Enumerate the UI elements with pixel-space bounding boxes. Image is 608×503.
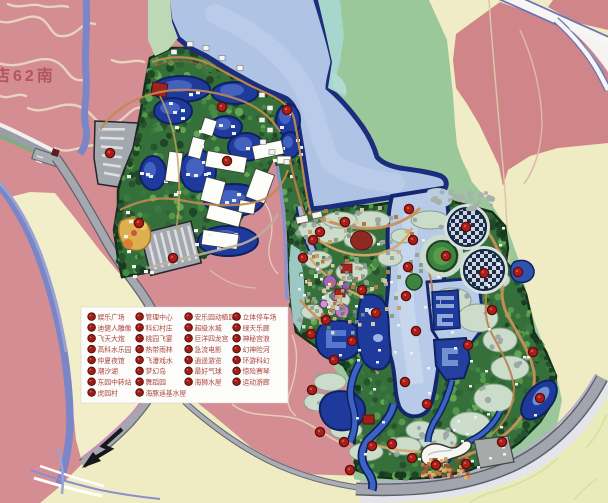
svg-text:运动游廊: 运动游廊	[243, 378, 270, 387]
svg-text:飞瀑戏水: 飞瀑戏水	[146, 356, 173, 365]
svg-text:迪健人雕像: 迪健人雕像	[98, 323, 132, 332]
svg-text:娱乐广场: 娱乐广场	[98, 312, 125, 321]
svg-text:立体停车场: 立体停车场	[243, 312, 277, 321]
svg-text:逍遥游览: 逍遥游览	[195, 356, 222, 365]
svg-text:仲夏夜馆: 仲夏夜馆	[98, 356, 125, 365]
svg-text:舞蹈园: 舞蹈园	[146, 378, 167, 387]
svg-text:惊险赛琴: 惊险赛琴	[243, 367, 270, 376]
svg-text:安乐园动植园: 安乐园动植园	[195, 312, 236, 321]
svg-text:最好气球: 最好气球	[195, 367, 222, 376]
svg-text:超级水城: 超级水城	[195, 323, 222, 332]
svg-text:神秘宫浪: 神秘宫浪	[243, 334, 270, 343]
svg-text:巨洋四龙宫: 巨洋四龙宫	[195, 334, 229, 343]
svg-text:虎园村: 虎园村	[98, 388, 119, 397]
svg-text:潮汐湖: 潮汐湖	[98, 367, 119, 376]
svg-text:科幻村庄: 科幻村庄	[146, 323, 173, 332]
svg-text:高科水乐园: 高科水乐园	[98, 345, 132, 354]
svg-text:梦幻岛: 梦幻岛	[146, 367, 167, 376]
svg-text:绿天乐廊: 绿天乐廊	[243, 323, 270, 332]
svg-text:东园中转站: 东园中转站	[98, 378, 132, 387]
svg-text:急流电影: 急流电影	[195, 345, 222, 354]
svg-text:幻神险河: 幻神险河	[243, 345, 270, 354]
svg-text:海狮水屋: 海狮水屋	[195, 378, 222, 387]
svg-text:管理中心: 管理中心	[146, 312, 173, 321]
svg-text:飞天大炮: 飞天大炮	[98, 334, 125, 343]
svg-text:环游科幻: 环游科幻	[243, 356, 270, 365]
svg-text:热带雨林: 热带雨林	[146, 345, 173, 354]
svg-text:海豚遥基水屋: 海豚遥基水屋	[146, 388, 187, 397]
svg-text:店62南: 店62南	[0, 66, 56, 85]
svg-text:桃园飞宴: 桃园飞宴	[146, 334, 173, 343]
